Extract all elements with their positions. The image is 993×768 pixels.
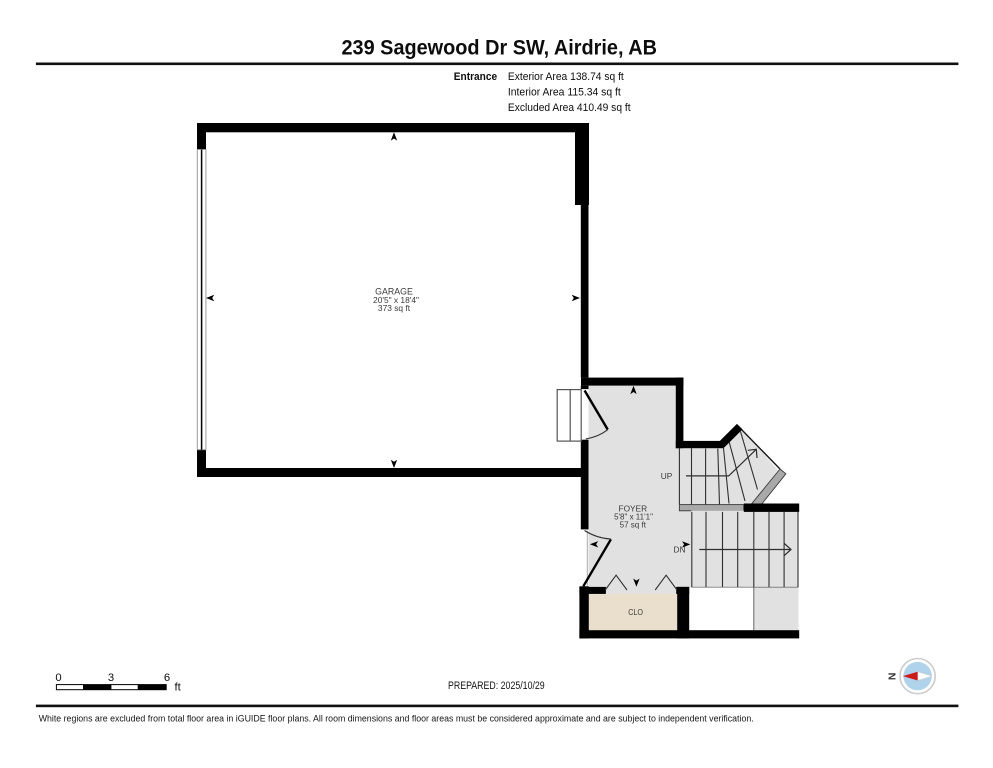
svg-text:239 Sagewood Dr SW, Airdrie, A: 239 Sagewood Dr SW, Airdrie, AB bbox=[342, 37, 658, 60]
svg-text:Excluded Area 410.49 sq ft: Excluded Area 410.49 sq ft bbox=[508, 102, 631, 114]
svg-text:ft: ft bbox=[175, 682, 182, 694]
svg-text:Exterior Area 138.74 sq ft: Exterior Area 138.74 sq ft bbox=[508, 71, 624, 83]
svg-text:3: 3 bbox=[108, 672, 114, 684]
svg-text:UP: UP bbox=[661, 471, 673, 481]
svg-text:373 sq ft: 373 sq ft bbox=[378, 303, 411, 313]
svg-text:6: 6 bbox=[164, 672, 170, 684]
svg-text:Interior Area 115.34 sq ft: Interior Area 115.34 sq ft bbox=[508, 87, 621, 99]
svg-text:CLO: CLO bbox=[628, 608, 643, 617]
svg-text:PREPARED: 2025/10/29: PREPARED: 2025/10/29 bbox=[448, 680, 545, 692]
svg-text:N: N bbox=[887, 673, 899, 681]
svg-text:57 sq ft: 57 sq ft bbox=[620, 521, 647, 530]
svg-text:0: 0 bbox=[55, 672, 61, 684]
svg-text:Entrance: Entrance bbox=[454, 71, 497, 83]
svg-text:White regions are excluded fro: White regions are excluded from total fl… bbox=[39, 713, 754, 723]
